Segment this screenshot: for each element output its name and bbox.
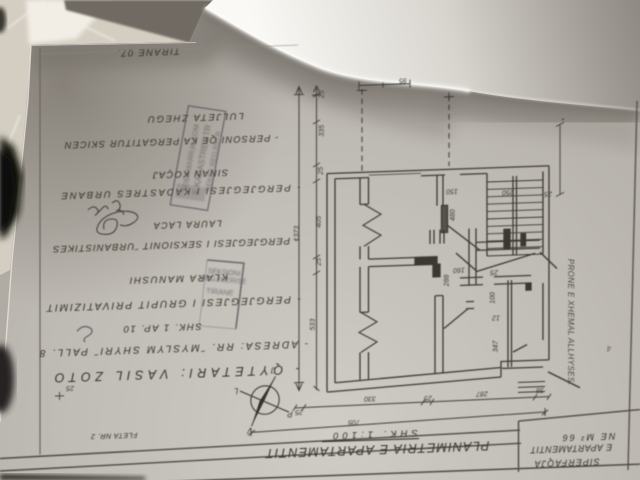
svg-text:347: 347 xyxy=(493,339,500,352)
svg-text:288: 288 xyxy=(444,274,451,287)
svg-text:NE M² 66: NE M² 66 xyxy=(561,431,616,443)
svg-text:25: 25 xyxy=(295,408,304,415)
svg-text:705: 705 xyxy=(348,418,360,425)
svg-text:533: 533 xyxy=(310,319,317,331)
svg-text:25: 25 xyxy=(490,268,499,275)
svg-text:100: 100 xyxy=(490,292,497,304)
svg-text:150: 150 xyxy=(446,187,458,194)
svg-text:P: P xyxy=(287,409,293,418)
svg-text:25: 25 xyxy=(316,258,323,267)
svg-text:25: 25 xyxy=(544,190,553,197)
svg-text:405: 405 xyxy=(316,216,323,228)
svg-text:160: 160 xyxy=(453,266,465,273)
svg-text:TIRANE 07.: TIRANE 07. xyxy=(116,45,180,58)
svg-text:330: 330 xyxy=(364,394,376,401)
svg-text:95: 95 xyxy=(399,76,407,83)
svg-text:L: L xyxy=(234,386,238,395)
svg-text:4: 4 xyxy=(606,344,611,353)
svg-text:25: 25 xyxy=(318,167,325,176)
svg-text:FLETA NR. 2: FLETA NR. 2 xyxy=(91,431,138,442)
svg-text:1373: 1373 xyxy=(294,226,301,242)
svg-text:38: 38 xyxy=(536,386,544,393)
svg-text:25: 25 xyxy=(66,384,75,391)
svg-text:25: 25 xyxy=(319,90,326,99)
svg-text:250: 250 xyxy=(502,188,515,195)
svg-text:335: 335 xyxy=(319,125,326,137)
svg-text:287: 287 xyxy=(475,389,489,396)
svg-text:480: 480 xyxy=(450,209,457,221)
svg-text:12: 12 xyxy=(492,313,500,320)
svg-text:25: 25 xyxy=(424,394,433,401)
svg-text:PRONE E XHEMAL ALLHYSES.: PRONE E XHEMAL ALLHYSES. xyxy=(566,259,575,386)
